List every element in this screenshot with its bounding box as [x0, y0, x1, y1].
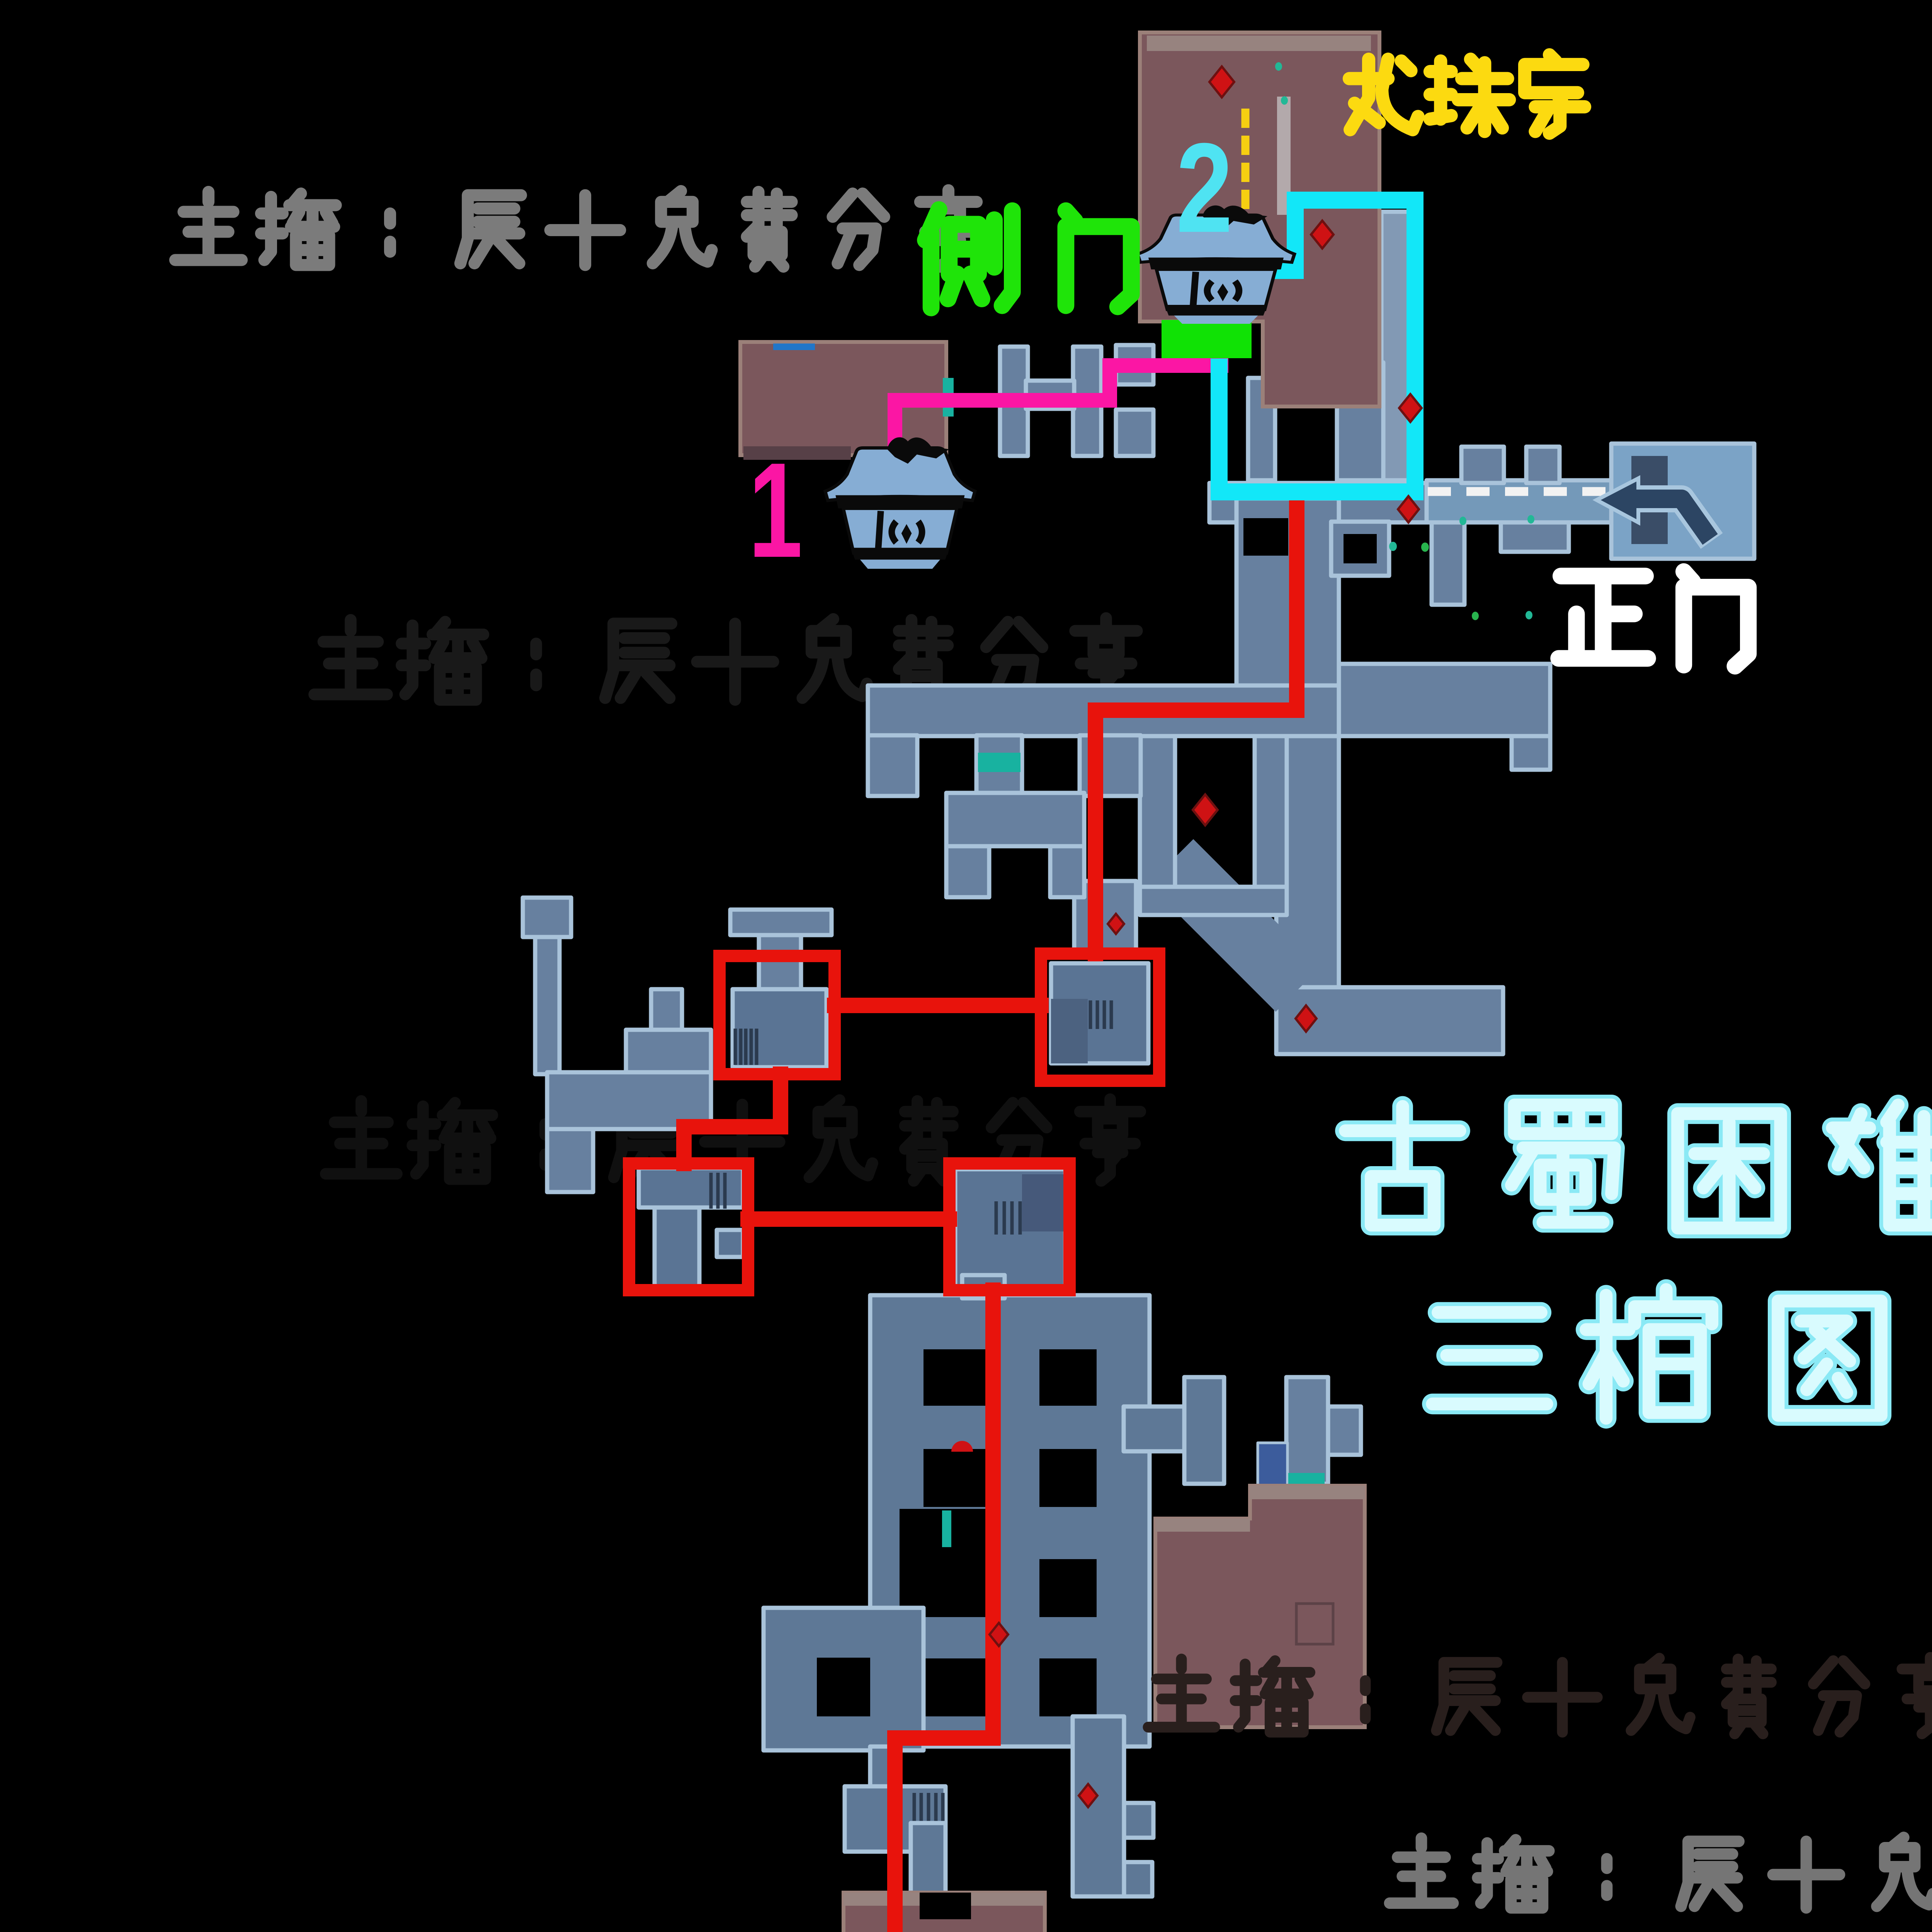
svg-text:1: 1 — [748, 434, 803, 585]
svg-text:2: 2 — [1176, 117, 1233, 259]
